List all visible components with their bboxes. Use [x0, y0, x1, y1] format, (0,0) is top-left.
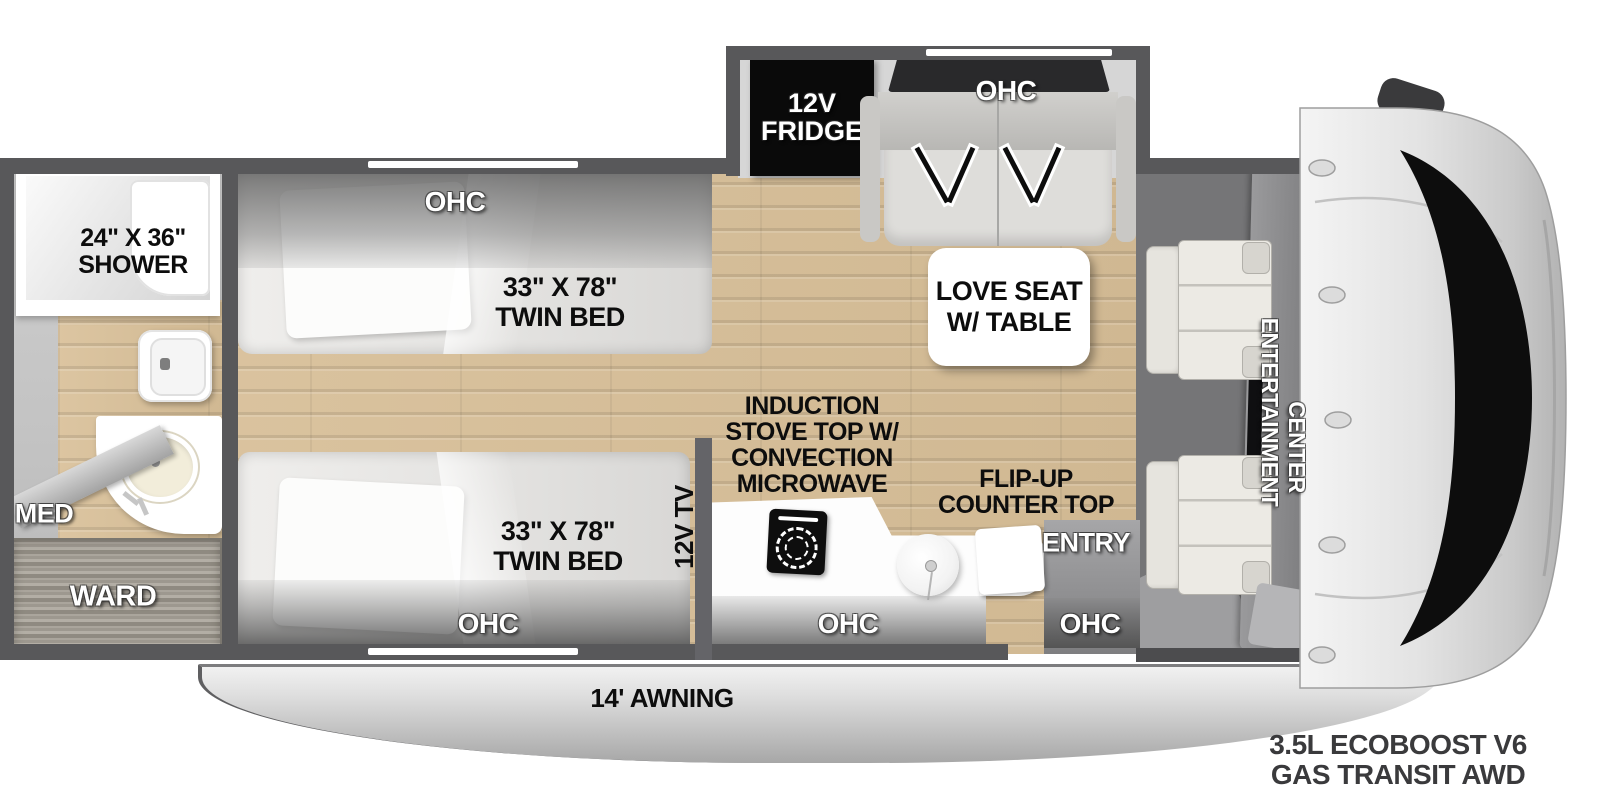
cab-body [1130, 70, 1600, 690]
stove-line4: MICROWAVE [725, 471, 898, 497]
toilet-flush [160, 358, 170, 370]
bed-top-size-label: 33" X 78" TWIN BED [495, 272, 624, 332]
loveseat-label-line1: LOVE SEAT [936, 276, 1083, 307]
wall-bath-divider [222, 158, 238, 660]
chassis-drivetrain-label: GAS TRANSIT AWD [1269, 760, 1527, 789]
loveseat-table-card: LOVE SEAT W/ TABLE [928, 248, 1090, 366]
awning-label: 14' AWNING [590, 685, 733, 713]
bed-top-dims: 33" X 78" [495, 272, 624, 302]
toilet-bowl [150, 338, 206, 396]
tv-label: 12V TV [671, 485, 699, 569]
bed-top-ohc-label: OHC [425, 187, 486, 217]
bed-bottom-type: TWIN BED [493, 546, 622, 576]
fridge-label-line1: 12V [788, 89, 836, 117]
shower-size-label: 24" X 36" [78, 225, 188, 252]
shower-text-label: SHOWER [78, 252, 188, 279]
flip-up-line2: COUNTER TOP [938, 492, 1114, 518]
loveseat-armrest-left [860, 96, 880, 242]
wall-slideout-left [726, 46, 740, 176]
entertainment-label-line2: CENTER [1285, 401, 1309, 493]
entertainment-label-line1: ENTERTAINMENT [1258, 318, 1282, 507]
flip-up-line1: FLIP-UP [938, 466, 1114, 492]
entry-ohc-label: OHC [1060, 609, 1121, 639]
stove-label: INDUCTION STOVE TOP W/ CONVECTION MICROW… [725, 393, 898, 497]
stove-line1: INDUCTION [725, 393, 898, 419]
bed-bottom-ohc-label: OHC [458, 609, 519, 639]
flip-up-label: FLIP-UP COUNTER TOP [938, 466, 1114, 518]
fridge: 12V FRIDGE [750, 58, 874, 176]
bed-bottom-dims: 33" X 78" [493, 516, 622, 546]
entry-label: ENTRY [1042, 529, 1130, 558]
rv-floorplan: 14' AWNING 3.5L ECOBOOST V6 GAS TRANSIT … [0, 0, 1600, 789]
ward-label: WARD [70, 582, 157, 613]
stove-line3: CONVECTION [725, 445, 898, 471]
med-label: MED [15, 500, 74, 529]
toilet [138, 330, 212, 402]
kitchen-ohc-label: OHC [818, 609, 879, 639]
bed-top-type: TWIN BED [495, 302, 624, 332]
sink-drain [925, 560, 937, 572]
entry-door [975, 525, 1045, 595]
loveseat-label-line2: W/ TABLE [947, 307, 1071, 338]
fridge-label-line2: FRIDGE [761, 117, 863, 145]
bed-bottom-size-label: 33" X 78" TWIN BED [493, 516, 622, 576]
cooktop-control-strip [778, 516, 818, 522]
induction-cooktop [766, 509, 827, 576]
shower-label: 24" X 36" SHOWER [78, 225, 188, 279]
window-bottom [368, 648, 578, 655]
stove-line2: STOVE TOP W/ [725, 419, 898, 445]
loveseat-ohc-label: OHC [976, 76, 1037, 106]
seatbelts [884, 138, 1112, 226]
window-slideout [926, 49, 1112, 56]
kitchen-sink [897, 534, 959, 596]
chassis-engine-label: 3.5L ECOBOOST V6 [1269, 730, 1527, 760]
chassis-label: 3.5L ECOBOOST V6 GAS TRANSIT AWD [1269, 730, 1527, 789]
wall-rear [0, 158, 14, 660]
window-top [368, 161, 578, 168]
